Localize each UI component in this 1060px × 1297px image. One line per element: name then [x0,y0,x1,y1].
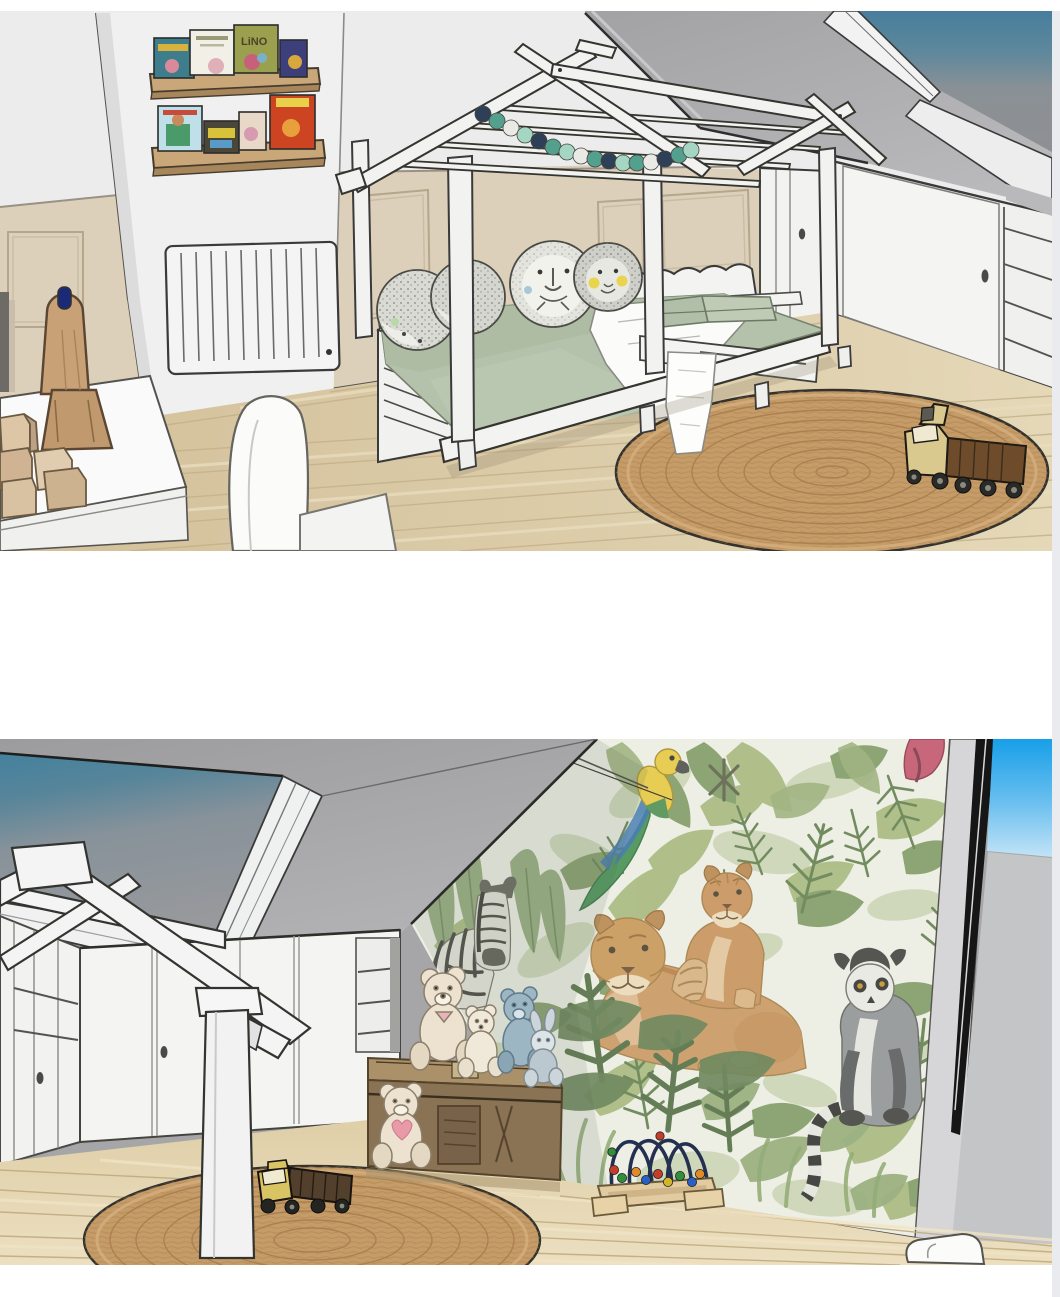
svg-text:LiNO: LiNO [241,36,268,48]
